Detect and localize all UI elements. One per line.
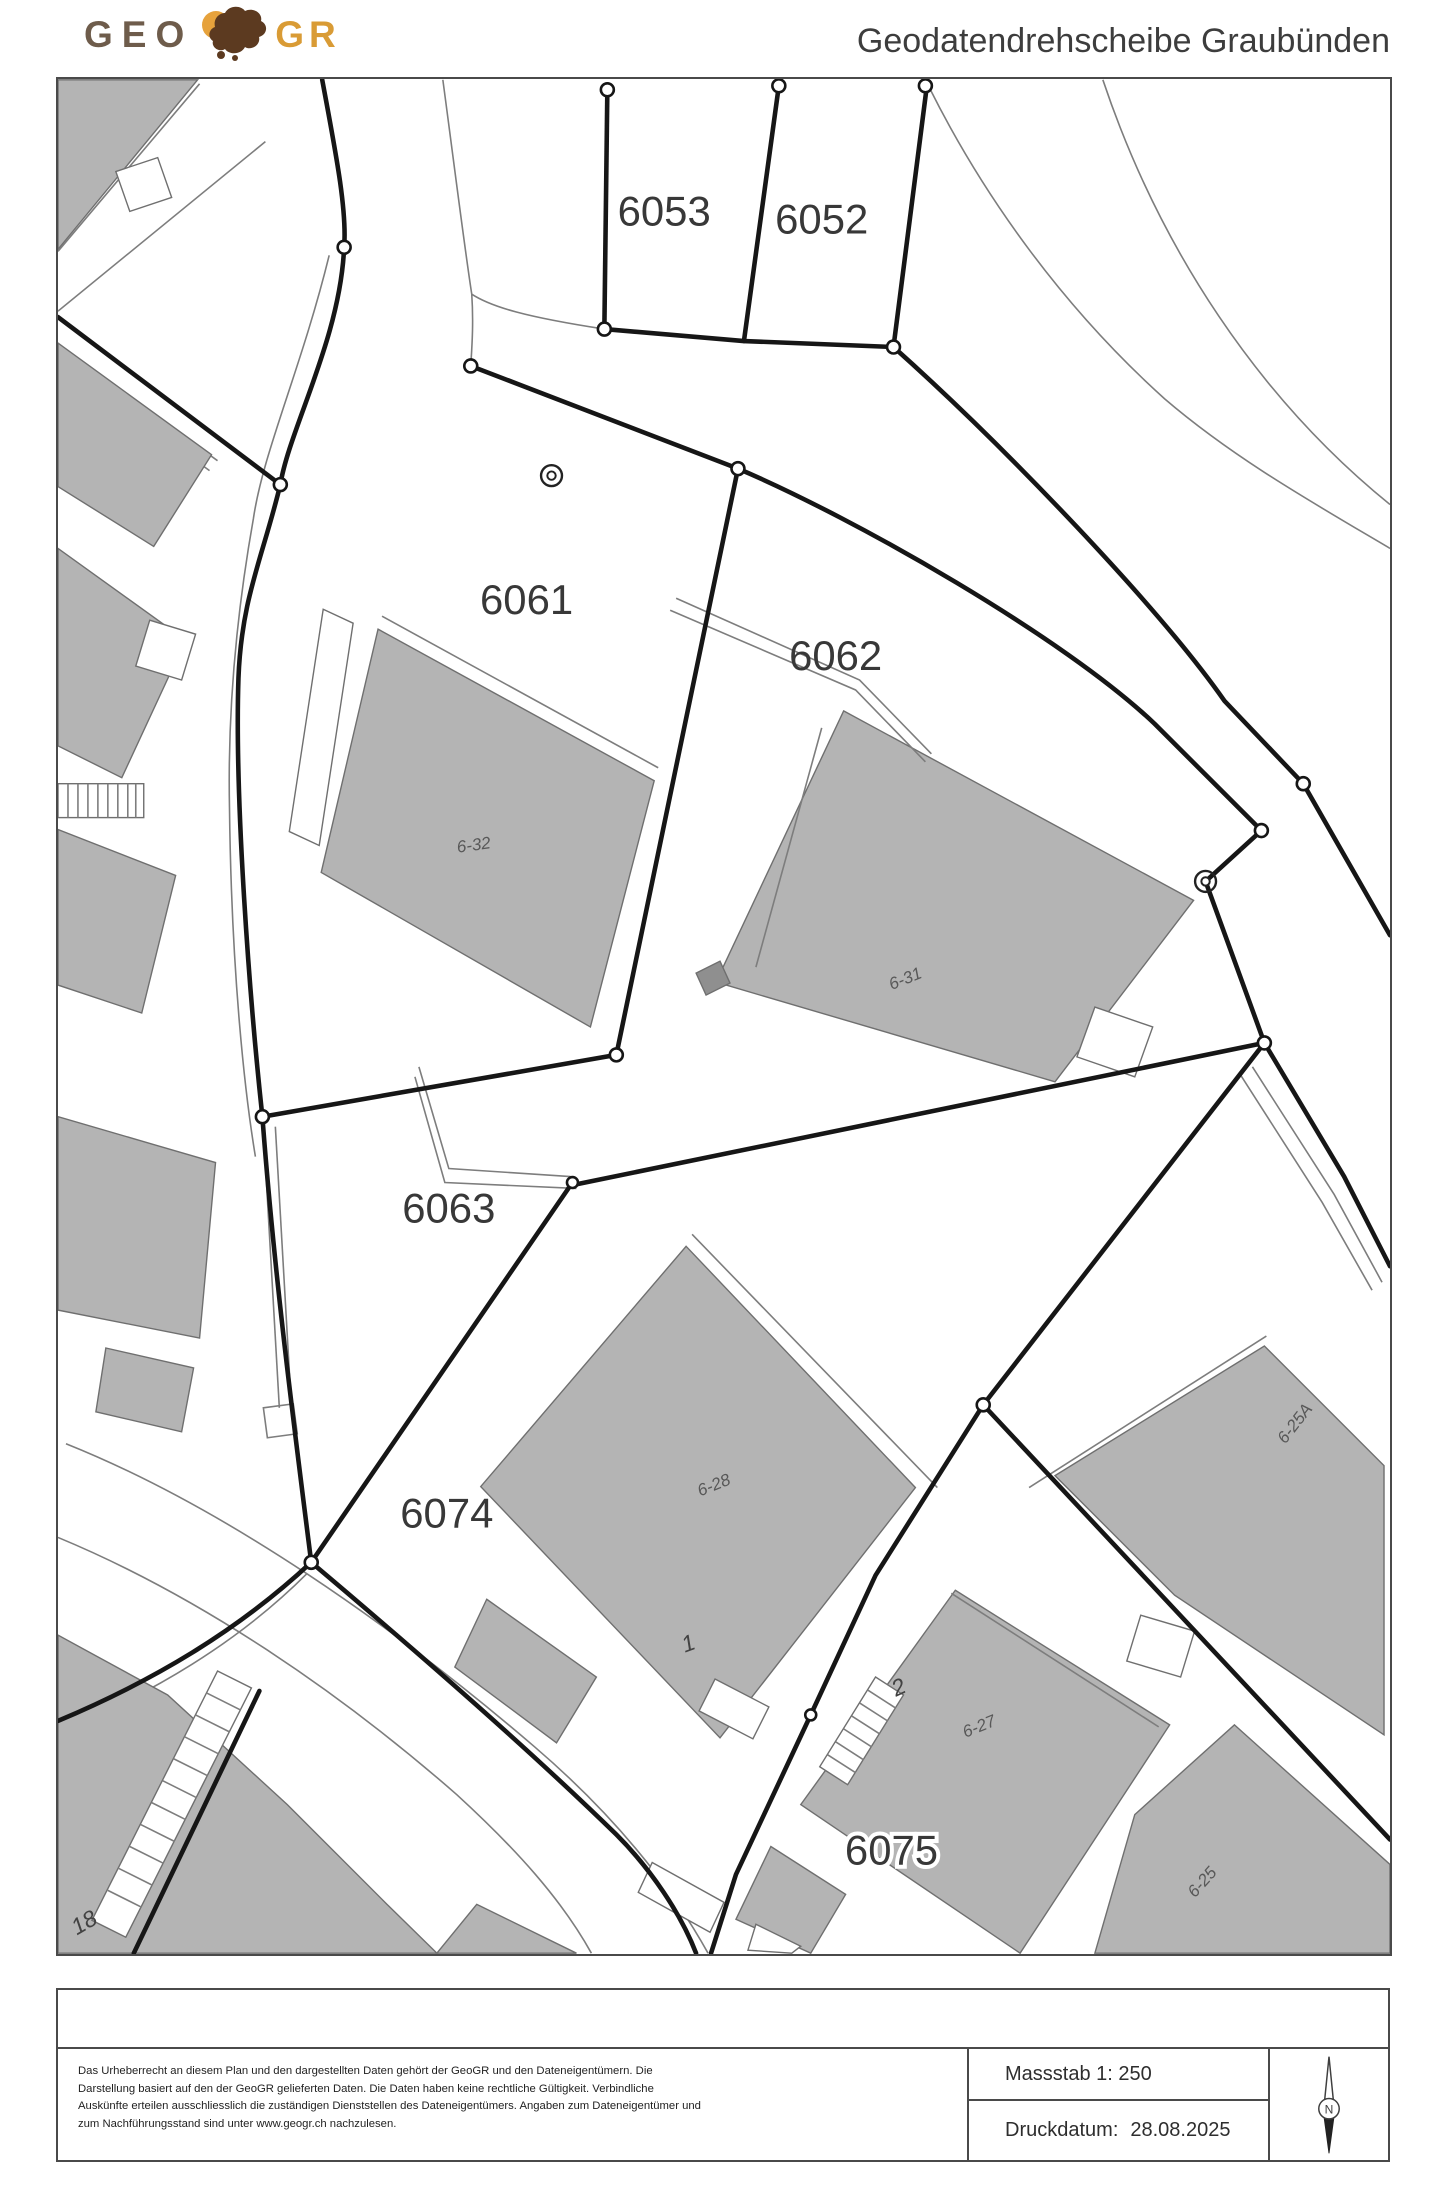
building-left-5 xyxy=(96,1348,194,1432)
map-footer: Das Urheberrecht an diesem Plan und den … xyxy=(56,1988,1390,2162)
north-arrow-cell: N xyxy=(1270,2049,1388,2160)
building-6-32 xyxy=(321,629,654,1027)
disclaimer-line: Auskünfte erteilen ausschliesslich die z… xyxy=(78,2098,943,2116)
header: GEO GR Geodatendrehscheibe Graubünden xyxy=(0,0,1440,77)
north-letter: N xyxy=(1325,2102,1334,2116)
disclaimer-line: Darstellung basiert auf den der GeoGR ge… xyxy=(78,2081,943,2099)
parcel-label-6074: 6074 xyxy=(400,1489,493,1536)
print-date: Druckdatum: 28.08.2025 xyxy=(969,2101,1268,2160)
scale-and-date-cell: Massstab 1: 250 Druckdatum: 28.08.2025 xyxy=(969,2049,1268,2160)
building-6-28-annex xyxy=(455,1599,597,1743)
cadastral-map: 6053 6052 6061 6062 6063 6074 6075 6-32 … xyxy=(56,77,1392,1956)
footer-empty-strip xyxy=(58,1990,1388,2049)
copyright-disclaimer: Das Urheberrecht an diesem Plan und den … xyxy=(58,2049,967,2160)
print-date-value: 28.08.2025 xyxy=(1130,2119,1230,2142)
building-topleft xyxy=(58,80,198,249)
control-point-symbol xyxy=(541,465,562,486)
parcel-label-6052: 6052 xyxy=(775,195,868,242)
parcel-label-6062: 6062 xyxy=(789,632,882,679)
geogr-logo: GEO GR xyxy=(84,6,341,64)
building-6-25A xyxy=(1055,1346,1384,1735)
buildings xyxy=(58,80,1390,1953)
scale-label: Massstab 1: 250 xyxy=(969,2049,1268,2101)
parcel-label-6063: 6063 xyxy=(402,1184,495,1231)
building-left-3 xyxy=(58,830,176,1013)
disclaimer-line: zum Nachführungsstand sind unter www.geo… xyxy=(78,2116,943,2134)
print-date-label: Druckdatum: xyxy=(1005,2119,1118,2142)
logo-text-geo: GEO xyxy=(84,14,193,56)
parcel-label-6061: 6061 xyxy=(480,576,573,623)
north-arrow-icon: N xyxy=(1307,2053,1351,2157)
parcel-label-6075: 6075 xyxy=(845,1826,938,1873)
page-title: Geodatendrehscheibe Graubünden xyxy=(857,22,1390,61)
graubuenden-blob-icon xyxy=(195,3,269,61)
map-canvas: 6053 6052 6061 6062 6063 6074 6075 6-32 … xyxy=(58,79,1390,1954)
control-point-symbol-2 xyxy=(1195,871,1216,892)
logo-text-gr: GR xyxy=(275,14,341,56)
building-bottom-1 xyxy=(437,1904,577,1953)
parcel-label-6053: 6053 xyxy=(618,187,711,234)
building-left-4 xyxy=(58,1117,216,1338)
disclaimer-line: Das Urheberrecht an diesem Plan und den … xyxy=(78,2063,943,2081)
